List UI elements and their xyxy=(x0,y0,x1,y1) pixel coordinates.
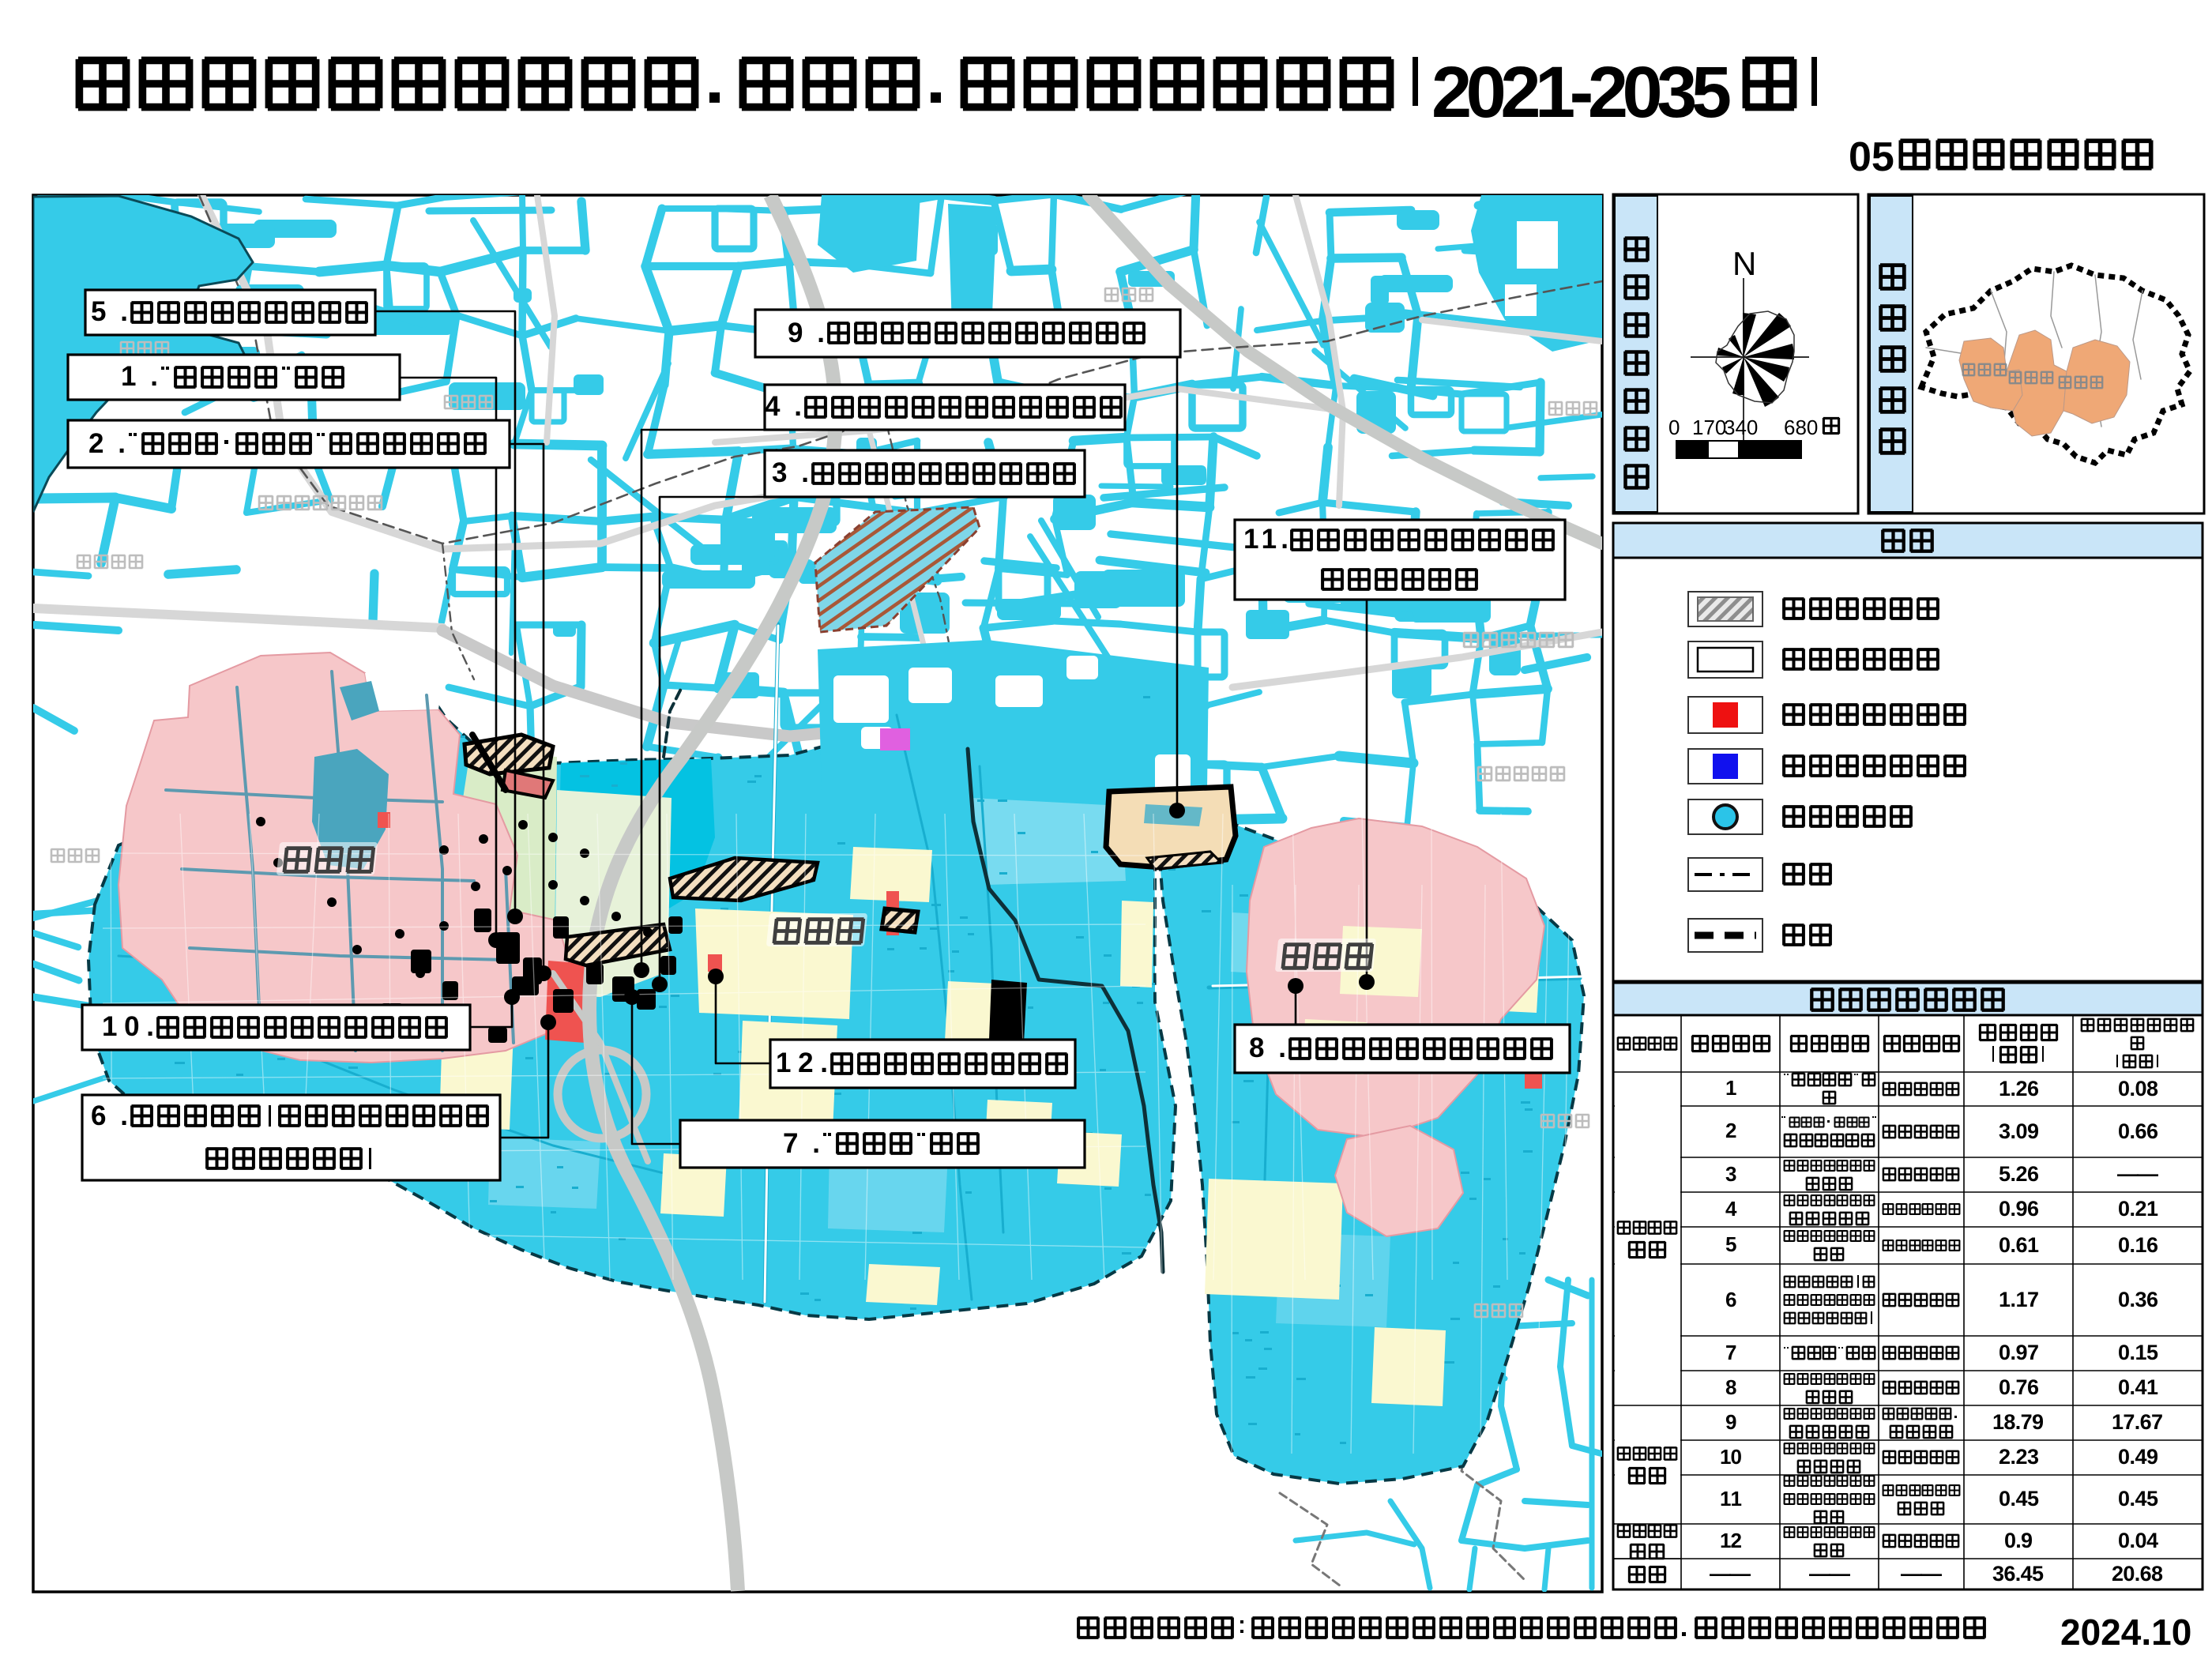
svg-text:10.: 10. xyxy=(102,1011,154,1042)
svg-text:12.: 12. xyxy=(776,1048,828,1078)
svg-text:0.66: 0.66 xyxy=(2118,1119,2158,1143)
svg-text:0.45: 0.45 xyxy=(2118,1487,2158,1510)
svg-text:5.26: 5.26 xyxy=(1999,1162,2039,1186)
svg-text:7: 7 xyxy=(1725,1341,1736,1364)
svg-text:05: 05 xyxy=(1849,134,1894,180)
svg-text:2: 2 xyxy=(1725,1119,1736,1142)
svg-text:0.61: 0.61 xyxy=(1999,1233,2039,1257)
svg-text:0.97: 0.97 xyxy=(1999,1341,2039,1364)
svg-text:3: 3 xyxy=(1725,1162,1736,1186)
svg-text:170: 170 xyxy=(1692,416,1726,439)
svg-text:0.49: 0.49 xyxy=(2118,1445,2158,1469)
svg-text:——: —— xyxy=(1809,1562,1850,1586)
svg-text:1.17: 1.17 xyxy=(1999,1288,2039,1311)
svg-text:0.15: 0.15 xyxy=(2118,1341,2158,1364)
svg-text:0: 0 xyxy=(1668,416,1680,439)
svg-text:——: —— xyxy=(1901,1562,1942,1586)
svg-text:N: N xyxy=(1732,245,1756,282)
svg-text:5: 5 xyxy=(1725,1232,1736,1256)
svg-text:680: 680 xyxy=(1784,416,1818,439)
svg-text:10: 10 xyxy=(1720,1445,1742,1469)
svg-text:1.26: 1.26 xyxy=(1999,1077,2039,1100)
svg-text:8: 8 xyxy=(1725,1375,1736,1399)
svg-text:2024.10: 2024.10 xyxy=(2060,1612,2191,1653)
svg-text:18.79: 18.79 xyxy=(1992,1410,2044,1434)
svg-text:0.41: 0.41 xyxy=(2118,1375,2158,1399)
svg-text:9: 9 xyxy=(1725,1410,1736,1434)
svg-text:0.76: 0.76 xyxy=(1999,1375,2039,1399)
svg-text:——: —— xyxy=(2117,1162,2158,1186)
svg-text:1: 1 xyxy=(1725,1076,1736,1100)
svg-text:3.09: 3.09 xyxy=(1999,1119,2039,1143)
svg-text:0.16: 0.16 xyxy=(2118,1233,2158,1257)
svg-text:2.23: 2.23 xyxy=(1999,1445,2039,1469)
svg-text:0.9: 0.9 xyxy=(2004,1529,2033,1552)
svg-text:0.08: 0.08 xyxy=(2118,1077,2158,1100)
svg-text:0.96: 0.96 xyxy=(1999,1197,2039,1221)
svg-text:340: 340 xyxy=(1724,416,1758,439)
svg-text:6: 6 xyxy=(1725,1288,1736,1311)
svg-text:0.45: 0.45 xyxy=(1999,1487,2039,1510)
svg-text:36.45: 36.45 xyxy=(1992,1562,2044,1586)
svg-text:0.04: 0.04 xyxy=(2118,1529,2158,1552)
svg-text:11: 11 xyxy=(1720,1487,1742,1510)
svg-text:4: 4 xyxy=(1725,1197,1737,1221)
svg-text:——: —— xyxy=(1710,1562,1751,1586)
svg-text:12: 12 xyxy=(1720,1529,1742,1552)
svg-text:17.67: 17.67 xyxy=(2112,1410,2163,1434)
svg-text:0.21: 0.21 xyxy=(2118,1197,2158,1221)
svg-text:2021-2035: 2021-2035 xyxy=(1431,52,1732,133)
svg-text:11.: 11. xyxy=(1243,524,1288,555)
svg-text:20.68: 20.68 xyxy=(2112,1562,2163,1586)
svg-text:0.36: 0.36 xyxy=(2118,1288,2158,1311)
